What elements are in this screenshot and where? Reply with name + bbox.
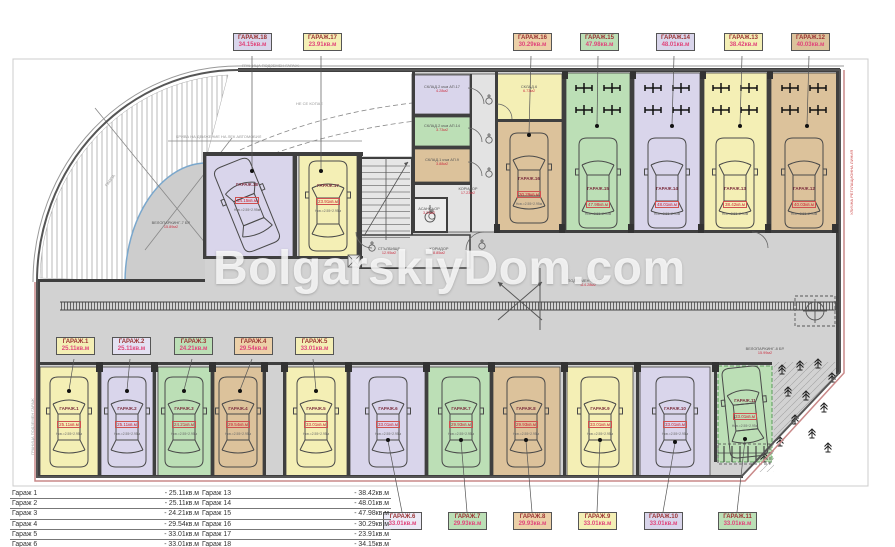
legend-row: Гараж 14- 48.01кв.м <box>200 499 391 509</box>
garage-5-label-area: 33.01кв.м <box>296 346 333 353</box>
garage-4-label: ГАРАЖ.4 29.54кв.м <box>234 337 273 355</box>
room-label-velo-8: ВЕЛОПАРКИНГ-8 БР.15.99м2 <box>736 346 794 356</box>
legend-row: Гараж 6- 33.01кв.м <box>10 540 201 547</box>
garage-8-label: ГАРАЖ.8 29.93кв.м <box>513 512 552 530</box>
legend-right-column: Гараж 13- 38.42кв.м Гараж 14- 48.01кв.м … <box>200 489 391 547</box>
garage-5-label-name: ГАРАЖ.5 <box>296 339 333 346</box>
garage-14-label-area: 48.01кв.м <box>657 42 694 49</box>
room-label-sklad-ap17: СКЛАД.2 към АП.174.28м2 <box>416 84 468 94</box>
legend-row: Гараж 15- 47.98кв.м <box>200 509 391 519</box>
garage-5-label: ГАРАЖ.5 33.01кв.м <box>295 337 334 355</box>
garage-15-label: ГАРАЖ.15 47.98кв.м <box>580 33 619 51</box>
garage-7-label-name: ГАРАЖ.7 <box>449 514 486 521</box>
street-regulation-line-note: УЛИЧНА РЕГУЛАЦИОННА ЛИНИЯ <box>849 150 854 215</box>
floor-plan-page: ГАРАЖ.18 34.15кв.м ГАРАЖ.17 23.91кв.м ГА… <box>0 0 895 547</box>
left-edge-note: ГРАНИЦА ПОДЗЕМЕН ГАРАЖ <box>30 398 35 455</box>
garage-18-label-name: ГАРАЖ.18 <box>234 35 271 42</box>
stall-card-4: ГАРАЖ.429.54кв.мНсв.=2.55÷2.95м <box>220 406 256 436</box>
garage-1-label-name: ГАРАЖ.1 <box>57 339 94 346</box>
garage-11-label: ГАРАЖ.11 33.01кв.м <box>718 512 757 530</box>
garage-14-label-name: ГАРАЖ.14 <box>657 35 694 42</box>
garage-2-label: ГАРАЖ.2 25.11кв.м <box>112 337 151 355</box>
watermark: BolgarskiyDom.com <box>213 241 686 296</box>
legend-row: Гараж 3- 24.21кв.м <box>10 509 201 519</box>
garage-18-label-area: 34.15кв.м <box>234 42 271 49</box>
garage-1-label-area: 25.11кв.м <box>57 346 94 353</box>
garage-13-label-name: ГАРАЖ.13 <box>725 35 762 42</box>
garage-3-label: ГАРАЖ.3 24.21кв.м <box>174 337 213 355</box>
no-dig-note: НЕ СЕ КОПАЕ <box>296 101 323 106</box>
curve-note: КРИВА НА ДВИЖЕНИЕ НА ЛЕК АВТОМОБИЛ <box>176 134 261 139</box>
legend-row: Гараж 1- 25.11кв.м <box>10 489 201 499</box>
garage-17-label: ГАРАЖ.17 23.91кв.м <box>303 33 342 51</box>
garage-2-label-area: 25.11кв.м <box>113 346 150 353</box>
garage-7-label-area: 29.93кв.м <box>449 521 486 528</box>
top-edge-note: ГРАНИЦА ПОДЗЕМЕН ГАРАЖ <box>242 63 299 68</box>
legend-row: Гараж 13- 38.42кв.м <box>200 489 391 499</box>
garage-4-label-area: 29.54кв.м <box>235 346 272 353</box>
stall-card-16: ГАРАЖ.1630.29кв.мНсв.=2.55÷2.95м <box>511 176 547 206</box>
stall-card-17: ГАРАЖ.1723.91кв.мНсв.=2.55÷2.95м <box>310 183 346 213</box>
garage-9-label: ГАРАЖ.9 33.01кв.м <box>578 512 617 530</box>
room-label-velo-7: ВЕЛОПАРКИНГ-7 БР.15.89м2 <box>140 220 202 230</box>
legend-row: Гараж 5- 33.01кв.м <box>10 530 201 540</box>
garage-2-label-name: ГАРАЖ.2 <box>113 339 150 346</box>
garage-12-label: ГАРАЖ.12 40.03кв.м <box>791 33 830 51</box>
garage-15-label-area: 47.98кв.м <box>581 42 618 49</box>
stall-card-11: ГАРАЖ.1133.01кв.мНсв.=2.55÷2.95м <box>727 398 763 428</box>
garage-3-label-name: ГАРАЖ.3 <box>175 339 212 346</box>
room-label-sklad-ap9: СКЛАД.1 към АП.93.88м2 <box>416 157 468 167</box>
garage-8-label-area: 29.93кв.м <box>514 521 551 528</box>
room-label-elevator: АСАНСЬОР3.23м2 <box>406 206 452 216</box>
garage-4-label-name: ГАРАЖ.4 <box>235 339 272 346</box>
legend-row: Гараж 4- 29.54кв.м <box>10 520 201 530</box>
stall-card-3: ГАРАЖ.324.21кв.мНсв.=2.55÷2.95м <box>166 406 202 436</box>
stall-card-6: ГАРАЖ.633.01кв.мНсв.=2.55÷2.95м <box>370 406 406 436</box>
garage-13-label-area: 38.42кв.м <box>725 42 762 49</box>
legend-row: Гараж 2- 25.11кв.м <box>10 499 201 509</box>
median-wall <box>60 302 838 310</box>
garage-11-label-name: ГАРАЖ.11 <box>719 514 756 521</box>
stall-card-10: ГАРАЖ.1033.01кв.мНсв.=2.55÷2.95м <box>657 406 693 436</box>
room-sklad-ap17 <box>414 75 470 114</box>
garage-12-label-area: 40.03кв.м <box>792 42 829 49</box>
stall-card-2: ГАРАЖ.225.11кв.мНсв.=2.55÷2.95м <box>109 406 145 436</box>
garage-13-label: ГАРАЖ.13 38.42кв.м <box>724 33 763 51</box>
garage-1-label: ГАРАЖ.1 25.11кв.м <box>56 337 95 355</box>
garage-15-label-name: ГАРАЖ.15 <box>581 35 618 42</box>
garage-7-label: ГАРАЖ.7 29.93кв.м <box>448 512 487 530</box>
garage-8-label-name: ГАРАЖ.8 <box>514 514 551 521</box>
garage-9-label-name: ГАРАЖ.9 <box>579 514 616 521</box>
room-label-corridor-1: КОРИДОР17.23м2 <box>442 186 494 196</box>
stall-card-5: ГАРАЖ.533.01кв.мНсв.=2.55÷2.95м <box>298 406 334 436</box>
garage-9-label-area: 33.01кв.м <box>579 521 616 528</box>
legend-row: Гараж 16- 30.29кв.м <box>200 520 391 530</box>
garage-16-label-area: 30.29кв.м <box>514 42 551 49</box>
garage-10-label-area: 33.01кв.м <box>645 521 682 528</box>
garage-16-label-name: ГАРАЖ.16 <box>514 35 551 42</box>
garage-10-label-name: ГАРАЖ.10 <box>645 514 682 521</box>
garage-17-label-area: 23.91кв.м <box>304 42 341 49</box>
stall-card-13: ГАРАЖ.1338.42кв.мНсв.=2.55÷2.95м <box>717 186 753 216</box>
stall-card-15: ГАРАЖ.1547.98кв.мНсв.=2.55÷2.95м <box>580 186 616 216</box>
legend-row: Гараж 17- 23.91кв.м <box>200 530 391 540</box>
legend-left-column: Гараж 1- 25.11кв.м Гараж 2- 25.11кв.м Га… <box>10 489 201 547</box>
garage-18-label: ГАРАЖ.18 34.15кв.м <box>233 33 272 51</box>
stall-card-7: ГАРАЖ.729.93кв.мНсв.=2.55÷2.95м <box>443 406 479 436</box>
stall-card-14: ГАРАЖ.1448.01кв.мНсв.=2.55÷2.95м <box>649 186 685 216</box>
stall-card-8: ГАРАЖ.829.93кв.мНсв.=2.55÷2.95м <box>508 406 544 436</box>
stall-card-9: ГАРАЖ.933.01кв.мНсв.=2.55÷2.95м <box>582 406 618 436</box>
garage-10-label: ГАРАЖ.10 33.01кв.м <box>644 512 683 530</box>
garage-14-label: ГАРАЖ.14 48.01кв.м <box>656 33 695 51</box>
stall-card-1: ГАРАЖ.125.11кв.мНсв.=2.55÷2.95м <box>51 406 87 436</box>
legend-row: Гараж 18- 34.15кв.м <box>200 540 391 547</box>
garage-17-label-name: ГАРАЖ.17 <box>304 35 341 42</box>
room-label-sklad-ap14: СКЛАД.2 към АП.143.73м2 <box>416 123 468 133</box>
garage-12-label-name: ГАРАЖ.12 <box>792 35 829 42</box>
room-label-sklad-6: СКЛАД.66.73м2 <box>504 84 554 94</box>
garage-11-label-area: 33.01кв.м <box>719 521 756 528</box>
stall-card-18: ГАРАЖ.1834.15кв.мНсв.=2.55÷2.95м <box>229 182 265 212</box>
garage-16-label: ГАРАЖ.16 30.29кв.м <box>513 33 552 51</box>
garage-3-label-area: 24.21кв.м <box>175 346 212 353</box>
stall-card-12: ГАРАЖ.1240.03кв.мНсв.=2.55÷2.95м <box>786 186 822 216</box>
